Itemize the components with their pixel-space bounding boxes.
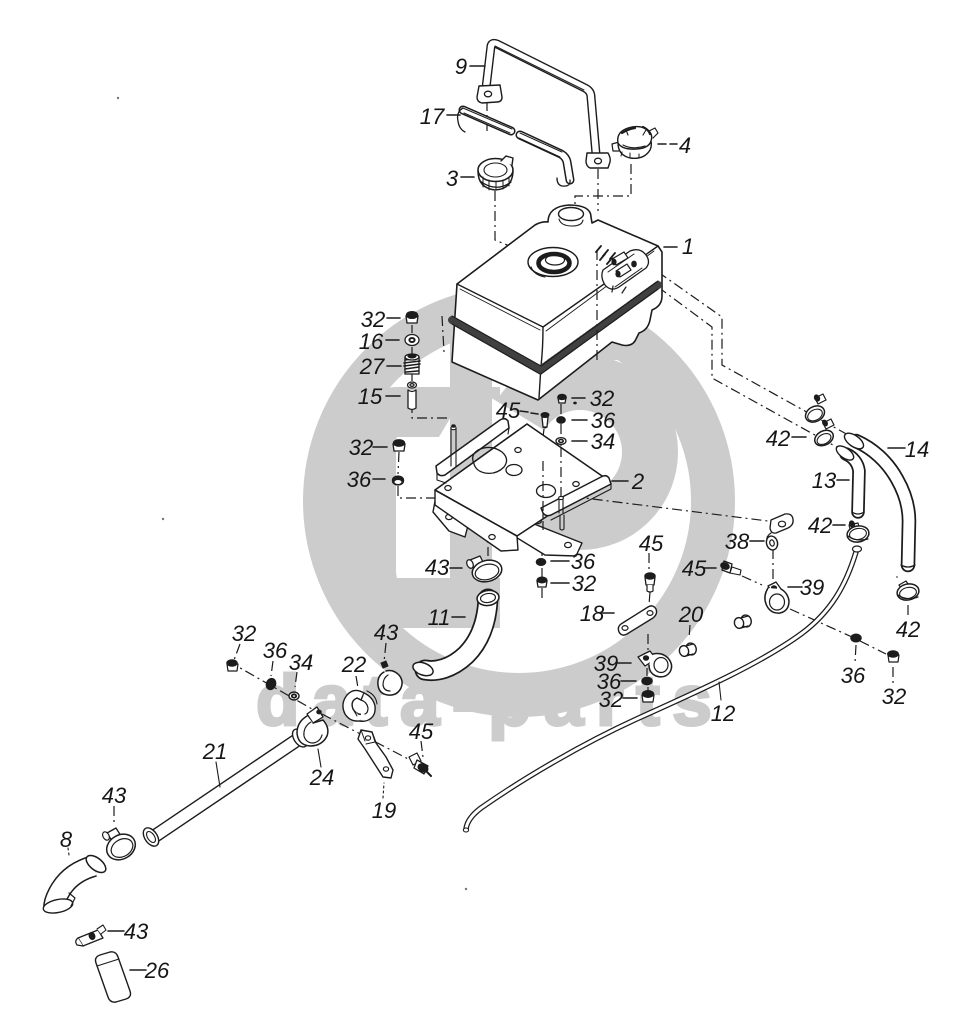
svg-text:45: 45	[409, 719, 434, 744]
svg-text:15: 15	[358, 384, 383, 409]
svg-text:11: 11	[428, 605, 451, 630]
svg-text:19: 19	[372, 798, 396, 823]
svg-text:43: 43	[124, 919, 149, 944]
svg-text:20: 20	[678, 602, 704, 627]
svg-text:43: 43	[102, 783, 127, 808]
svg-text:32: 32	[599, 687, 623, 712]
svg-text:43: 43	[425, 555, 450, 580]
svg-text:42: 42	[808, 513, 832, 538]
svg-text:38: 38	[725, 529, 750, 554]
svg-text:45: 45	[639, 531, 664, 556]
svg-text:43: 43	[374, 620, 399, 645]
svg-text:21: 21	[202, 739, 227, 764]
svg-text:36: 36	[841, 663, 866, 688]
svg-text:39: 39	[800, 575, 824, 600]
svg-text:42: 42	[766, 426, 790, 451]
svg-text:16: 16	[359, 329, 384, 354]
svg-text:9: 9	[455, 54, 467, 79]
svg-text:3: 3	[446, 166, 459, 191]
svg-text:34: 34	[591, 429, 615, 454]
svg-text:42: 42	[896, 617, 920, 642]
svg-text:1: 1	[682, 234, 694, 259]
svg-text:32: 32	[232, 621, 256, 646]
svg-text:18: 18	[580, 601, 605, 626]
svg-text:36: 36	[263, 638, 288, 663]
svg-text:12: 12	[711, 701, 735, 726]
svg-text:32: 32	[882, 684, 906, 709]
svg-text:32: 32	[349, 435, 373, 460]
svg-text:17: 17	[420, 104, 445, 129]
svg-text:26: 26	[144, 958, 170, 983]
svg-text:22: 22	[341, 652, 366, 677]
svg-text:36: 36	[347, 467, 372, 492]
svg-text:32: 32	[572, 571, 596, 596]
svg-text:45: 45	[682, 556, 707, 581]
svg-text:24: 24	[309, 765, 334, 790]
svg-text:8: 8	[60, 827, 73, 852]
svg-text:13: 13	[812, 468, 837, 493]
svg-text:4: 4	[679, 133, 691, 158]
svg-text:34: 34	[289, 650, 313, 675]
svg-text:14: 14	[905, 437, 929, 462]
svg-text:2: 2	[631, 469, 644, 494]
svg-text:45: 45	[496, 398, 521, 423]
svg-text:27: 27	[359, 354, 385, 379]
